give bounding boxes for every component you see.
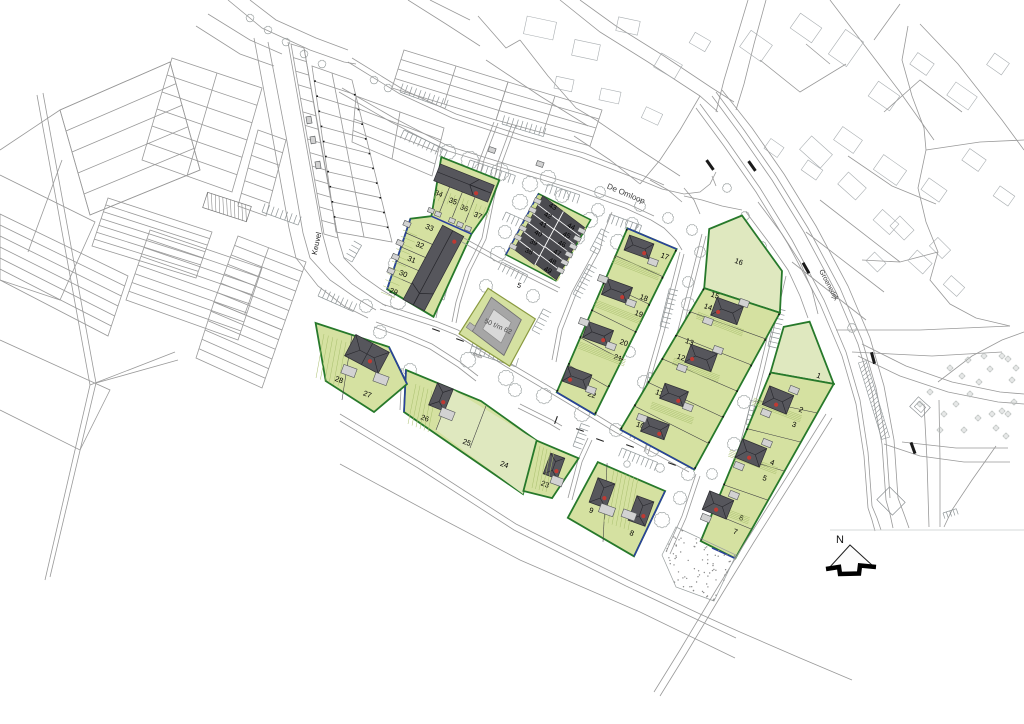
svg-text:N: N (836, 534, 844, 546)
